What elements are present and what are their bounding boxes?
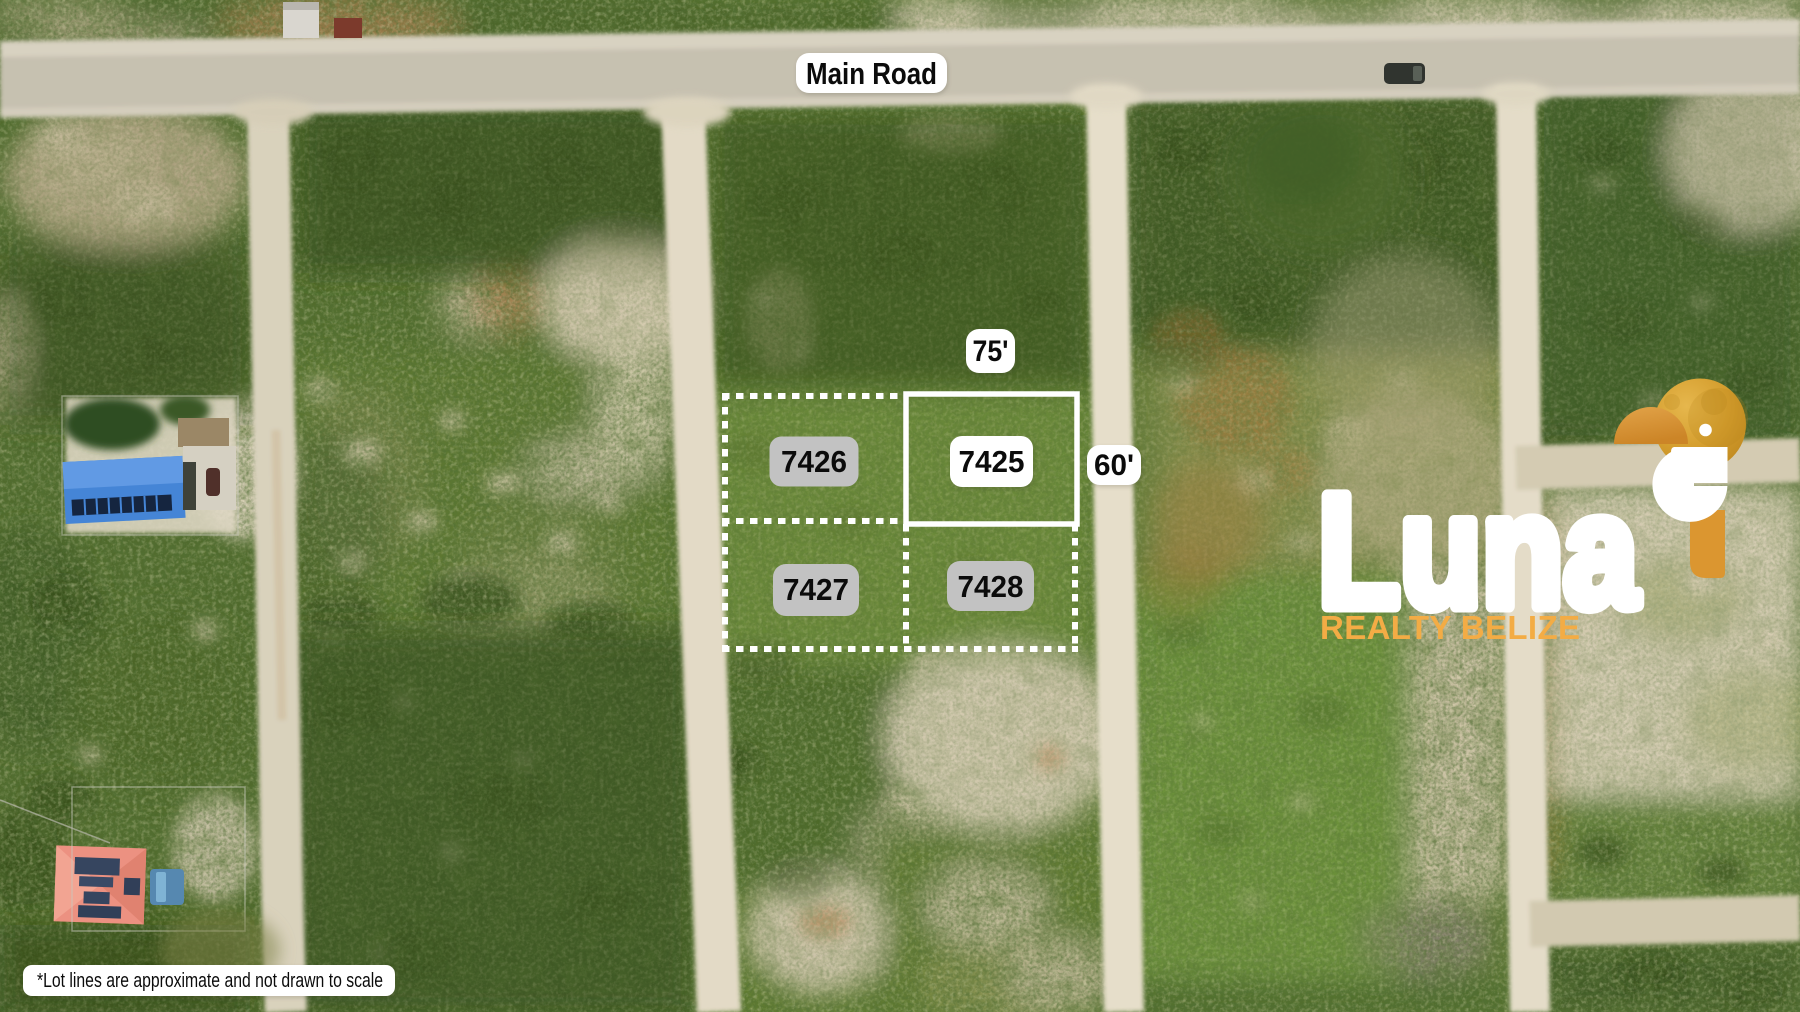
svg-text:7427: 7427 <box>783 572 849 607</box>
svg-text:Main Road: Main Road <box>806 56 937 91</box>
svg-text:*Lot lines are approximate and: *Lot lines are approximate and not drawn… <box>37 970 383 992</box>
svg-text:7425: 7425 <box>959 444 1025 479</box>
svg-text:REALTY BELIZE: REALTY BELIZE <box>1320 609 1580 646</box>
svg-text:60': 60' <box>1094 449 1134 482</box>
svg-text:75': 75' <box>973 335 1009 368</box>
svg-text:7426: 7426 <box>781 444 847 479</box>
svg-text:7428: 7428 <box>958 569 1024 604</box>
